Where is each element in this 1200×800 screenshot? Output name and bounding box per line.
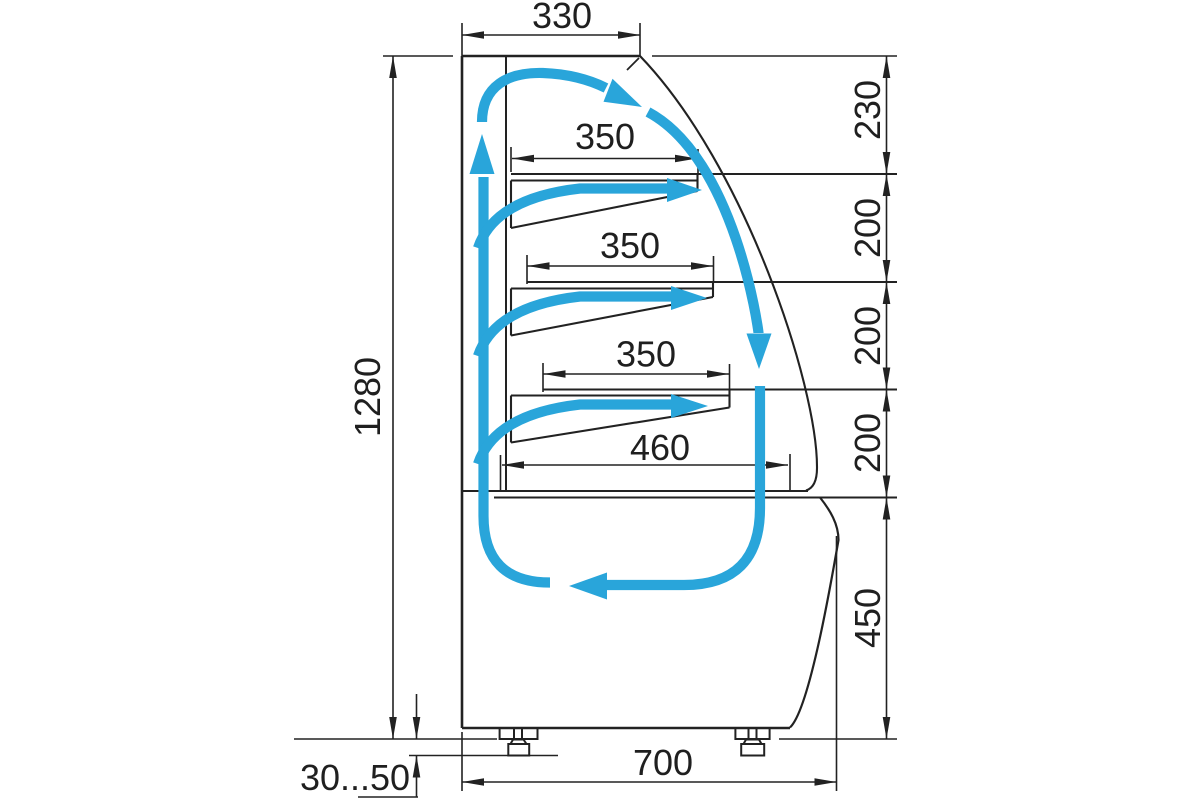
svg-text:450: 450: [847, 588, 888, 648]
svg-text:30...50: 30...50: [300, 757, 410, 798]
svg-text:350: 350: [600, 225, 660, 266]
svg-text:350: 350: [575, 116, 635, 157]
svg-text:200: 200: [847, 306, 888, 366]
svg-text:330: 330: [532, 0, 592, 36]
svg-text:350: 350: [616, 334, 676, 375]
svg-text:200: 200: [847, 413, 888, 473]
svg-text:230: 230: [847, 80, 888, 140]
svg-text:200: 200: [847, 198, 888, 258]
svg-text:460: 460: [630, 427, 690, 468]
svg-text:1280: 1280: [347, 357, 388, 437]
svg-text:700: 700: [633, 742, 693, 783]
